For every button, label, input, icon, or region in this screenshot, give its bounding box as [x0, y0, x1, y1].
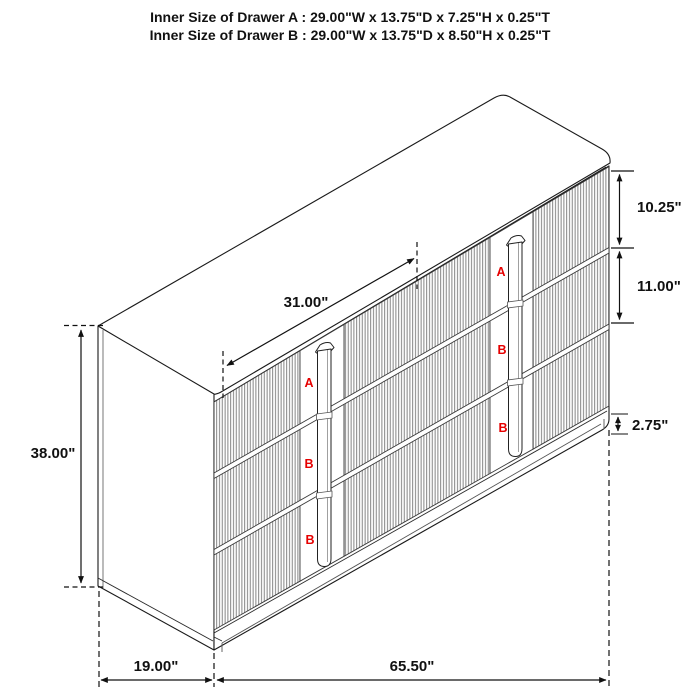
top-diagonal-label: 31.00" — [284, 294, 329, 311]
fluted-panel-right — [533, 167, 609, 450]
drawer-a-height-label: 10.25" — [637, 199, 682, 216]
handle-right — [507, 236, 526, 457]
base-height-label: 2.75" — [632, 417, 668, 434]
handle-left — [316, 343, 335, 567]
dimension-right-stack — [611, 171, 634, 434]
drawer-letter-left-a: A — [304, 376, 313, 390]
drawer-letter-left-b2: B — [305, 533, 314, 547]
title-line-drawer-b: Inner Size of Drawer B : 29.00"W x 13.75… — [0, 26, 700, 44]
page-title: Inner Size of Drawer A : 29.00"W x 13.75… — [0, 8, 700, 44]
dresser-isometric-drawing: A B B A B B — [0, 0, 700, 700]
base-ticks — [611, 414, 628, 434]
handle-left-bar — [318, 349, 332, 567]
depth-label: 19.00" — [134, 658, 179, 675]
dimension-diagram-page: Inner Size of Drawer A : 29.00"W x 13.75… — [0, 0, 700, 700]
drawer-letter-right-b1: B — [497, 343, 506, 357]
drawer-b-height-label: 11.00" — [637, 278, 681, 295]
drawer-letter-right-b2: B — [498, 421, 507, 435]
fluted-panel-left — [214, 351, 300, 630]
handle-right-bar — [509, 242, 523, 457]
drawer-letter-left-b1: B — [304, 457, 313, 471]
right-ticks — [611, 171, 634, 323]
height-label: 38.00" — [31, 445, 76, 462]
drawer-letter-right-a: A — [496, 265, 505, 279]
title-line-drawer-a: Inner Size of Drawer A : 29.00"W x 13.75… — [0, 8, 700, 26]
width-label: 65.50" — [390, 658, 435, 675]
